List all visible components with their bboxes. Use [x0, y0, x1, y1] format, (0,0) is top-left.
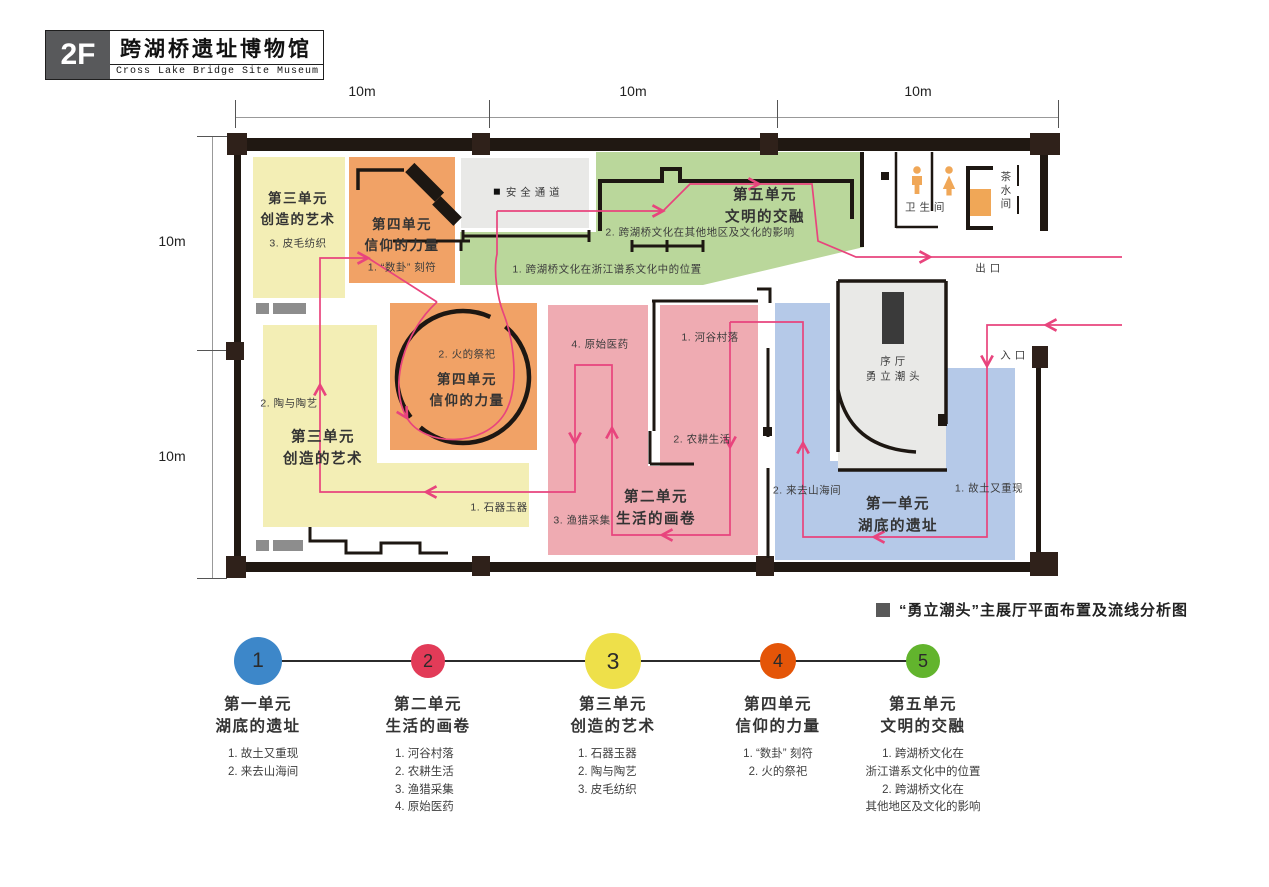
title-block: 2F 跨湖桥遗址博物馆 Cross Lake Bridge Site Museu…: [45, 30, 324, 80]
caption-text: “勇立潮头”主展厅平面布置及流线分析图: [899, 599, 1188, 620]
unit1-sea-item: 2. 来去山海间: [773, 484, 841, 499]
unit4-fire-item: 2. 火的祭祀: [438, 348, 495, 363]
dim-tick: [777, 100, 778, 128]
prologue-hall-label: 序 厅 勇 立 潮 头: [866, 354, 920, 383]
dim-tick: [1058, 100, 1059, 128]
museum-title-zh: 跨湖桥遗址博物馆: [110, 31, 323, 64]
legend-items-1: 1. 故土又重现 2. 来去山海间: [228, 746, 298, 782]
column: [756, 556, 774, 576]
tearoom-label: 茶水间: [998, 171, 1013, 212]
caption: “勇立潮头”主展厅平面布置及流线分析图: [876, 599, 1188, 620]
legend-number: 1: [252, 649, 264, 673]
entrance-label: 入 口: [1000, 349, 1025, 364]
unit2-farm-item: 2. 农耕生活: [673, 433, 730, 448]
dim-label-10m: 10m: [158, 448, 185, 464]
dim-label-10m: 10m: [348, 83, 375, 99]
legend-items-5: 1. 跨湖桥文化在 浙江谱系文化中的位置 2. 跨湖桥文化在 其他地区及文化的影…: [866, 746, 981, 817]
column: [1030, 133, 1060, 155]
legend-title-1: 第一单元 湖底的遗址: [215, 694, 300, 739]
wall-bottom: [236, 562, 1058, 572]
unit2-valley-item: 1. 河谷村落: [681, 331, 738, 346]
restroom-label: 卫 生 间: [905, 201, 945, 216]
legend-title-5: 第五单元 文明的交融: [880, 694, 965, 739]
exit-label: 出 口: [975, 262, 1000, 277]
floor-badge: 2F: [46, 31, 110, 79]
unit4-fire-title: 第四单元 信仰的力量: [430, 370, 505, 412]
legend-items-4: 1. “数卦” 刻符 2. 火的祭祀: [743, 746, 813, 782]
wall-right-upper: [1040, 151, 1048, 231]
column: [226, 342, 244, 360]
entry-wall-block: [1032, 346, 1048, 368]
unit2-medicine-item: 4. 原始医药: [571, 338, 628, 353]
unit5-item1: 1. 跨湖桥文化在浙江谱系文化中的位置: [512, 263, 701, 278]
unit3-fur-item: 3. 皮毛纺织: [269, 237, 326, 252]
legend-title-4: 第四单元 信仰的力量: [735, 694, 820, 739]
legend-number: 3: [607, 648, 620, 675]
unit3-pottery-item: 2. 陶与陶艺: [260, 397, 317, 412]
legend-title-2: 第二单元 生活的画卷: [385, 694, 470, 739]
unit1-home-item: 1. 故土又重现: [955, 482, 1023, 497]
dim-label-10m: 10m: [619, 83, 646, 99]
column: [227, 133, 247, 155]
dim-tick: [235, 100, 236, 128]
zone-unit1-right: [945, 368, 1015, 461]
zone-unit3-stone: [377, 463, 529, 527]
legend-circle-4: 4: [760, 643, 796, 679]
unit3-stone-item: 1. 石器玉器: [470, 501, 527, 516]
zone-unit1-left: [775, 303, 830, 461]
column: [760, 133, 778, 155]
tea-counter-icon: [970, 189, 991, 216]
legend-number: 4: [773, 651, 783, 672]
safety-passage-label: 安 全 通 道: [494, 186, 560, 201]
unit5-item2: 2. 跨湖桥文化在其他地区及文化的影响: [605, 226, 794, 241]
column: [472, 556, 490, 576]
legend-circle-1: 1: [234, 637, 282, 685]
dim-tick: [197, 136, 227, 137]
unit2-fish-item: 3. 渔猎采集: [553, 514, 610, 529]
unit3-fur-title: 第三单元 创造的艺术: [261, 189, 336, 231]
side-dim-line: [212, 136, 213, 578]
dim-tick: [489, 100, 490, 128]
square-bullet-icon: [494, 189, 500, 195]
legend-items-3: 1. 石器玉器 2. 陶与陶艺 3. 皮毛纺织: [578, 746, 637, 799]
column: [472, 133, 490, 155]
column: [1030, 552, 1058, 576]
legend-number: 2: [423, 651, 433, 672]
legend-items-2: 1. 河谷村落 2. 农耕生活 3. 渔猎采集 4. 原始医药: [395, 746, 454, 817]
legend-number: 5: [918, 651, 928, 672]
unit5-title: 第五单元 文明的交融: [725, 185, 805, 230]
unit3-title: 第三单元 创造的艺术: [283, 427, 363, 472]
male-person-icon: [912, 166, 922, 194]
title-text-group: 跨湖桥遗址博物馆 Cross Lake Bridge Site Museum: [110, 31, 323, 79]
dim-label-10m: 10m: [904, 83, 931, 99]
legend-circle-5: 5: [906, 644, 940, 678]
wall-top: [236, 138, 1058, 151]
column: [226, 556, 246, 578]
dim-label-10m: 10m: [158, 233, 185, 249]
wall-left: [234, 151, 241, 571]
female-person-icon: [943, 166, 955, 195]
legend-title-3: 第三单元 创造的艺术: [570, 694, 655, 739]
unit2-title: 第二单元 生活的画卷: [616, 487, 696, 532]
unit1-title: 第一单元 湖底的遗址: [858, 494, 938, 539]
top-dim-line: [235, 117, 1059, 118]
dim-tick: [197, 578, 227, 579]
legend-circle-3: 3: [585, 633, 641, 689]
museum-title-en: Cross Lake Bridge Site Museum: [110, 64, 323, 79]
caption-square-icon: [876, 603, 890, 617]
dim-tick: [197, 350, 227, 351]
wall-right-lower: [1036, 368, 1041, 564]
unit4-carving-item: 1. “数卦” 刻符: [368, 261, 437, 276]
floor-plan-poster: { "header": { "floor": "2F", "title_zh":…: [0, 0, 1269, 887]
legend-circle-2: 2: [411, 644, 445, 678]
unit4-carving-title: 第四单元 信仰的力量: [365, 215, 440, 257]
zone-unit2-medicine: [548, 305, 648, 466]
